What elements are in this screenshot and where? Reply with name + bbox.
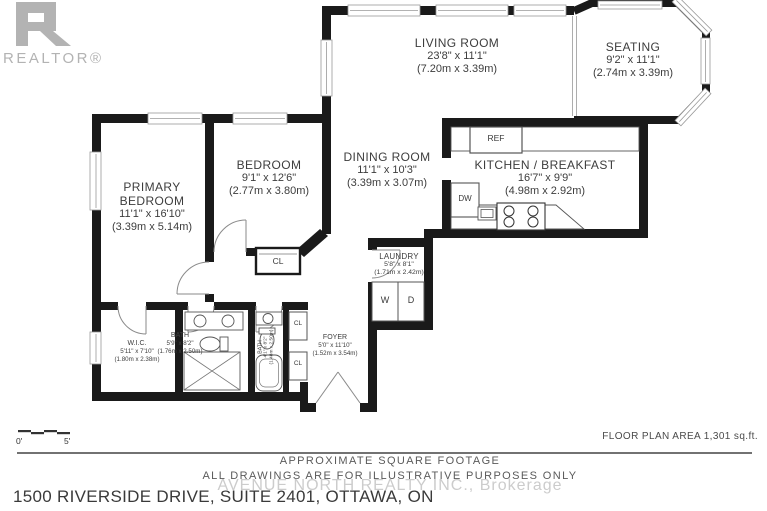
realtor-logo-icon (16, 2, 71, 46)
fridge-label: REF (488, 133, 505, 143)
footer-note-2: ALL DRAWINGS ARE FOR ILLUSTRATIVE PURPOS… (202, 470, 577, 482)
room-label-laundry: LAUNDRY 5'8" x 8'1" (1.71m x 2.42m) (374, 252, 423, 277)
floor-plan-page: REALTOR® LIVING ROOM 23'8" x 11'1" (7.20… (0, 0, 767, 511)
closet-label-foyer-bottom: CL (294, 360, 302, 367)
closet-label-bedroom: CL (273, 256, 284, 266)
room-label-wic: W.I.C. 5'11" x 7'10" (1.80m x 2.38m) (114, 340, 159, 363)
room-label-living: LIVING ROOM 23'8" x 11'1" (7.20m x 3.39m… (415, 36, 499, 76)
stove-icon (497, 203, 545, 230)
room-label-foyer: FOYER 5'0" x 11'10" (1.52m x 3.54m) (312, 334, 357, 357)
room-label-bath2: BATH 4'1" x 8'2" (1.48m x 2.50m) (257, 330, 274, 365)
closet-label-foyer-top: CL (294, 320, 302, 327)
dryer-label: D (408, 295, 415, 305)
washer-label: W (381, 295, 390, 305)
kitchen-sink-icon (478, 207, 496, 220)
dishwasher-label: DW (458, 194, 471, 203)
scale-bar (18, 430, 70, 434)
room-label-bath: BATH 5'9" x 8'2" (1.76m x 2.50m) (157, 332, 202, 355)
realtor-wordmark: REALTOR® (3, 50, 104, 67)
floor-plan-area-text: FLOOR PLAN AREA 1,301 sq.ft. (602, 431, 758, 442)
footer-note-1: APPROXIMATE SQUARE FOOTAGE (280, 455, 501, 467)
room-label-kitchen: KITCHEN / BREAKFAST 16'7" x 9'9" (4.98m … (475, 158, 616, 198)
scale-five-label: 5' (64, 436, 70, 446)
room-label-primary-bedroom: PRIMARY BEDROOM 11'1" x 16'10" (3.39m x … (112, 180, 192, 234)
room-label-bedroom: BEDROOM 9'1" x 12'6" (2.77m x 3.80m) (229, 158, 309, 198)
property-address: 1500 RIVERSIDE DRIVE, SUITE 2401, OTTAWA… (13, 487, 434, 507)
scale-zero-label: 0' (16, 436, 22, 446)
room-label-seating: SEATING 9'2" x 11'1" (2.74m x 3.39m) (593, 40, 673, 80)
room-label-dining: DINING ROOM 11'1" x 10'3" (3.39m x 3.07m… (343, 150, 430, 190)
